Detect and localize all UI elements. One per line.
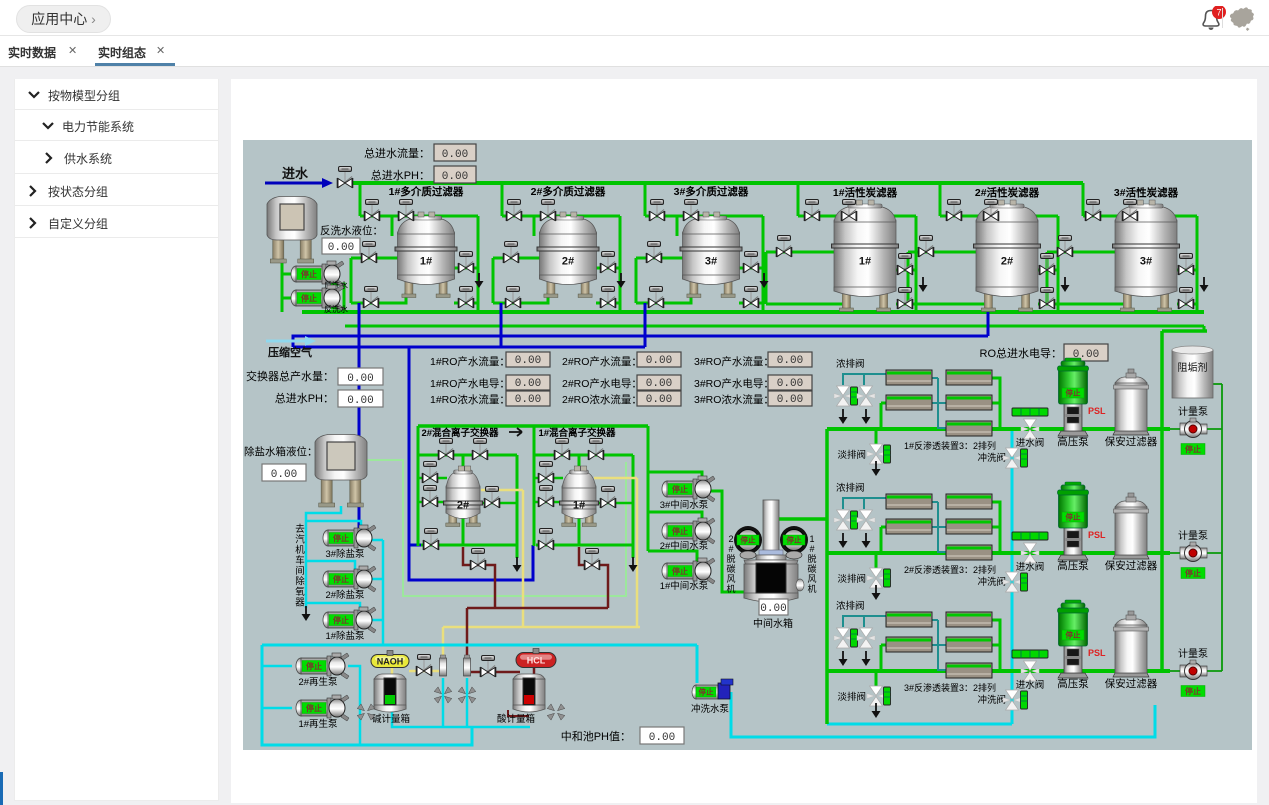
svg-text:进水阀: 进水阀 <box>1016 437 1045 449</box>
svg-text:冲洗阀: 冲洗阀 <box>977 694 1006 706</box>
svg-text:0.00: 0.00 <box>271 469 297 481</box>
svg-text:总进水PH：: 总进水PH： <box>275 391 334 405</box>
svg-text:1#: 1# <box>859 256 871 268</box>
svg-text:浓排阀: 浓排阀 <box>836 482 865 494</box>
svg-text:3#多介质过滤器: 3#多介质过滤器 <box>674 185 749 198</box>
svg-text:0.00: 0.00 <box>646 378 672 390</box>
svg-text:0.00: 0.00 <box>649 732 675 744</box>
svg-text:停止: 停止 <box>333 533 349 543</box>
svg-text:高压泵: 高压泵 <box>1057 435 1089 448</box>
svg-text:0.00: 0.00 <box>347 373 373 385</box>
svg-text:PSL: PSL <box>1088 648 1106 658</box>
svg-text:0.00: 0.00 <box>515 355 541 367</box>
svg-text:停止: 停止 <box>1185 568 1201 578</box>
svg-text:2#除盐泵: 2#除盐泵 <box>325 589 365 601</box>
svg-text:停止: 停止 <box>1185 686 1201 696</box>
svg-text:2#活性炭滤器: 2#活性炭滤器 <box>975 186 1040 199</box>
svg-text:0.00: 0.00 <box>515 378 541 390</box>
svg-text:总进水PH：: 总进水PH： <box>371 168 430 182</box>
svg-text:进水: 进水 <box>282 166 309 181</box>
svg-text:0.00: 0.00 <box>442 149 468 161</box>
svg-text:2#: 2# <box>457 500 469 512</box>
svg-text:碱计量箱: 碱计量箱 <box>372 713 410 725</box>
svg-text:0.00: 0.00 <box>328 242 354 254</box>
svg-text:浓排阀: 浓排阀 <box>836 358 865 370</box>
svg-text:停止: 停止 <box>1185 444 1201 454</box>
svg-text:反洗水: 反洗水 <box>324 304 348 314</box>
svg-text:3#RO产水流量：: 3#RO产水流量： <box>694 355 774 368</box>
svg-text:1#RO产水电导：: 1#RO产水电导： <box>430 377 510 390</box>
svg-text:NAOH: NAOH <box>377 657 404 667</box>
svg-text:0.00: 0.00 <box>760 603 786 615</box>
svg-text:1#中间水泵: 1#中间水泵 <box>660 580 709 592</box>
svg-text:停止: 停止 <box>333 574 349 584</box>
svg-text:停止: 停止 <box>306 703 322 713</box>
svg-text:冲洗阀: 冲洗阀 <box>977 452 1006 464</box>
svg-text:1#: 1# <box>420 256 432 268</box>
svg-text:停止: 停止 <box>306 661 322 671</box>
svg-text:淡排阀: 淡排阀 <box>837 449 866 461</box>
svg-text:停止: 停止 <box>1066 630 1082 640</box>
svg-text:0.00: 0.00 <box>515 394 541 406</box>
svg-text:2#中间水泵: 2#中间水泵 <box>660 540 709 552</box>
svg-text:0.00: 0.00 <box>777 378 803 390</box>
svg-text:保安过滤器: 保安过滤器 <box>1105 559 1158 572</box>
svg-text:3#: 3# <box>1140 256 1152 268</box>
svg-text:3#RO浓水流量：: 3#RO浓水流量： <box>694 393 774 406</box>
svg-text:2#RO浓水流量：: 2#RO浓水流量： <box>562 393 642 406</box>
svg-text:3#活性炭滤器: 3#活性炭滤器 <box>1114 186 1179 199</box>
svg-text:3#中间水泵: 3#中间水泵 <box>660 499 709 511</box>
svg-text:停止: 停止 <box>699 687 714 697</box>
svg-text:0.00: 0.00 <box>777 394 803 406</box>
svg-text:停止: 停止 <box>1066 388 1082 398</box>
svg-text:计量泵: 计量泵 <box>1178 529 1208 542</box>
svg-text:2#反渗透装置3：2排列: 2#反渗透装置3：2排列 <box>904 564 996 575</box>
svg-text:2#多介质过滤器: 2#多介质过滤器 <box>531 185 606 198</box>
svg-text:1#RO浓水流量：: 1#RO浓水流量： <box>430 393 510 406</box>
svg-text:进水阀: 进水阀 <box>1016 561 1045 573</box>
svg-text:停止: 停止 <box>787 535 802 545</box>
svg-text:1#再生泵: 1#再生泵 <box>298 718 338 730</box>
svg-text:停止: 停止 <box>333 615 349 625</box>
svg-text:停止: 停止 <box>1066 512 1082 522</box>
svg-text:0.00: 0.00 <box>347 395 373 407</box>
svg-text:酸计量箱: 酸计量箱 <box>497 713 535 725</box>
svg-text:停止: 停止 <box>301 293 317 303</box>
svg-text:1#活性炭滤器: 1#活性炭滤器 <box>833 186 898 199</box>
svg-text:0.00: 0.00 <box>777 355 803 367</box>
svg-text:除盐水箱液位：: 除盐水箱液位： <box>244 445 318 458</box>
svg-text:计量泵: 计量泵 <box>1178 647 1208 660</box>
svg-text:淡排阀: 淡排阀 <box>837 691 866 703</box>
svg-text:PSL: PSL <box>1088 406 1106 416</box>
svg-text:高压泵: 高压泵 <box>1057 677 1089 690</box>
svg-text:3#: 3# <box>705 256 717 268</box>
svg-text:计量泵: 计量泵 <box>1178 405 1208 418</box>
svg-text:进水阀: 进水阀 <box>1016 679 1045 691</box>
svg-text:冲洗阀: 冲洗阀 <box>977 576 1006 588</box>
svg-text:停止: 停止 <box>672 484 688 494</box>
svg-text:0.00: 0.00 <box>646 394 672 406</box>
svg-text:0.00: 0.00 <box>442 171 468 183</box>
svg-text:2#: 2# <box>562 256 574 268</box>
svg-text:1#RO产水流量：: 1#RO产水流量： <box>430 355 510 368</box>
svg-text:保安过滤器: 保安过滤器 <box>1105 677 1158 690</box>
svg-text:交换器总产水量：: 交换器总产水量： <box>246 369 334 383</box>
svg-text:停止: 停止 <box>741 535 756 545</box>
svg-text:停止: 停止 <box>301 269 317 279</box>
svg-text:浓排阀: 浓排阀 <box>836 600 865 612</box>
svg-text:压缩空气: 压缩空气 <box>268 345 312 359</box>
svg-text:1#除盐泵: 1#除盐泵 <box>325 630 365 642</box>
svg-text:0.00: 0.00 <box>646 355 672 367</box>
svg-text:总进水流量：: 总进水流量： <box>364 146 430 160</box>
svg-text:中和池PH值：: 中和池PH值： <box>561 730 631 743</box>
svg-text:7: 7 <box>1216 8 1221 18</box>
svg-text:3#除盐泵: 3#除盐泵 <box>325 548 365 560</box>
svg-text:中间水箱: 中间水箱 <box>753 617 793 630</box>
svg-text:阻垢剂: 阻垢剂 <box>1178 361 1208 374</box>
svg-text:2#再生泵: 2#再生泵 <box>298 676 338 688</box>
svg-text:1#反渗透装置3：2排列: 1#反渗透装置3：2排列 <box>904 440 996 451</box>
svg-text:高压泵: 高压泵 <box>1057 559 1089 572</box>
svg-text:反洗水液位：: 反洗水液位： <box>320 224 383 237</box>
svg-text:保安过滤器: 保安过滤器 <box>1105 435 1158 448</box>
svg-text:2#混合离子交换器: 2#混合离子交换器 <box>421 427 499 439</box>
svg-text:1#: 1# <box>573 500 585 512</box>
svg-text:去汽机车间除氧器: 去汽机车间除氧器 <box>295 523 305 609</box>
svg-text:PSL: PSL <box>1088 530 1106 540</box>
svg-text:2#RO产水流量：: 2#RO产水流量： <box>562 355 642 368</box>
svg-text:1#混合离子交换器: 1#混合离子交换器 <box>538 427 616 439</box>
svg-text:冲洗水泵: 冲洗水泵 <box>691 703 730 715</box>
svg-text:2#: 2# <box>1001 256 1013 268</box>
svg-text:停止: 停止 <box>672 566 688 576</box>
svg-text:RO总进水电导：: RO总进水电导： <box>980 346 1063 360</box>
svg-text:停止: 停止 <box>672 526 688 536</box>
svg-text:2#RO产水电导：: 2#RO产水电导： <box>562 377 642 390</box>
svg-text:1#多介质过滤器: 1#多介质过滤器 <box>389 185 464 198</box>
svg-text:HCL: HCL <box>527 656 546 666</box>
svg-text:淡排阀: 淡排阀 <box>837 573 866 585</box>
svg-text:3#反渗透装置3：2排列: 3#反渗透装置3：2排列 <box>904 682 996 693</box>
svg-text:3#RO产水电导：: 3#RO产水电导： <box>694 377 774 390</box>
